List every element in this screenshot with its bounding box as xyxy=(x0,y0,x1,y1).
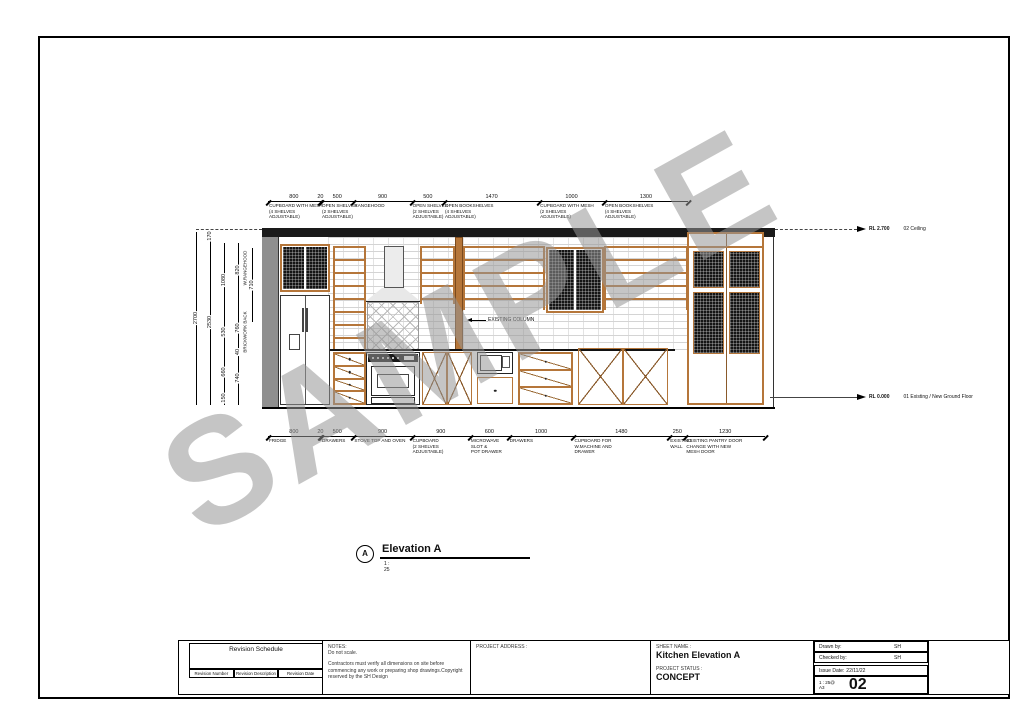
paper-size: A3 xyxy=(819,685,825,690)
fridge-handle xyxy=(306,308,308,332)
dim-value: 2700 xyxy=(193,311,199,325)
drawn-by-value: SH xyxy=(894,644,901,650)
dim-label: OPEN BOOKSHELVES (4 SHELVES ADJUSTABLE) xyxy=(445,203,503,220)
scale-value: 1 : 25@ xyxy=(819,680,835,685)
open-bookshelves-1300 xyxy=(604,246,688,310)
revision-col-number: Revision Number xyxy=(189,669,234,678)
dimension-segment: 500OPEN SHELVES (2 SHELVES ADJUSTABLE) xyxy=(412,191,444,202)
dim-label: CUPBOARD FOR W.MACHINE AND DRAWER xyxy=(574,438,632,455)
dim-value: 900 xyxy=(378,429,387,435)
dim-value: 1470 xyxy=(485,194,497,200)
rangehood-canopy xyxy=(366,288,420,301)
dim-value: 600 xyxy=(485,429,494,435)
fridge-handle xyxy=(302,308,304,332)
dim-value: 500 xyxy=(333,429,342,435)
ceiling-level-line xyxy=(196,229,262,230)
bottom-dimension-chain: 800FRIDGE20500DRAWERS900STOVE TOP AND OV… xyxy=(268,426,765,437)
drawn-by-row: Drawn by: SH xyxy=(814,641,928,652)
ceiling-rl: RL 2.700 xyxy=(869,226,889,232)
dim-value: 500 xyxy=(333,194,342,200)
sheet-number: 02 xyxy=(849,676,867,694)
dim-value: 250 xyxy=(673,429,682,435)
dimension-segment: 900CUPBOARD (2 SHELVES ADJUSTABLE) xyxy=(412,426,470,437)
cupboard-door xyxy=(447,352,472,405)
dim-value: 170 xyxy=(207,230,213,241)
title-block: Revision Schedule Revision Number Revisi… xyxy=(178,640,1010,695)
pantry-mesh-panel xyxy=(729,292,760,354)
rangehood-chimney xyxy=(384,246,404,288)
dim-label: DRAWERS xyxy=(510,438,533,444)
dim-value: 150 xyxy=(221,392,227,403)
dimension-segment: 1480CUPBOARD FOR W.MACHINE AND DRAWER xyxy=(573,426,669,437)
checked-by-row: Checked by: SH xyxy=(814,652,928,663)
cupboard-door xyxy=(422,352,447,405)
drawer xyxy=(334,391,365,404)
callout-text: EXISTING COLUMN xyxy=(488,317,534,323)
dim-label: FRIDGE xyxy=(269,438,286,444)
revision-schedule-title: Revision Schedule xyxy=(190,646,322,653)
revision-schedule-box: Revision Schedule xyxy=(189,643,323,669)
dimension-segment: 900RANGEHOOD xyxy=(353,191,411,202)
dimension-segment: 1470OPEN BOOKSHELVES (4 SHELVES ADJUSTAB… xyxy=(444,191,539,202)
view-scale: 1 : 25 xyxy=(384,561,390,573)
revision-col-description: Revision Description xyxy=(234,669,279,678)
cupboard-door xyxy=(623,348,668,405)
dimension-segment: 500OPEN SHELVES (2 SHELVES ADJUSTABLE) xyxy=(321,191,353,202)
dimension-segment: 1300OPEN BOOKSHELVES (4 SHELVES ADJUSTAB… xyxy=(604,191,688,202)
existing-column xyxy=(455,237,463,350)
drawer xyxy=(334,379,365,392)
fridge-dispenser xyxy=(289,334,300,350)
notes-cell: NOTES: Do not scale. Contractors must ve… xyxy=(323,641,471,694)
pantry-mesh-panel xyxy=(693,292,724,354)
oven-door xyxy=(371,366,415,396)
open-shelves-column xyxy=(333,246,366,350)
scale-paper: 1 : 25@ A3 xyxy=(819,680,835,691)
open-shelves-right-of-hood xyxy=(420,246,455,304)
view-title-rule xyxy=(380,557,530,559)
dim-value: 900 xyxy=(378,194,387,200)
fridge xyxy=(280,295,330,405)
dim-value: 1000 xyxy=(565,194,577,200)
dimension-segment: 900STOVE TOP AND OVEN xyxy=(353,426,411,437)
dimension-segment: 250EXISTING WALL xyxy=(669,426,685,437)
oven-drawer xyxy=(371,397,415,404)
project-address-label: PROJECT ADDRESS : xyxy=(476,644,645,650)
drawer xyxy=(334,353,365,366)
dim-label: RANGEHOOD xyxy=(354,203,384,209)
pantry-mesh-panel xyxy=(729,251,760,288)
scale-sheet-row: 1 : 25@ A3 02 xyxy=(814,676,928,694)
dimension-segment: 500DRAWERS xyxy=(321,426,353,437)
open-bookshelves-1470 xyxy=(463,246,545,310)
view-name: Elevation A xyxy=(382,543,442,555)
pantry-mesh-doors xyxy=(687,232,764,405)
dim-value: 660 xyxy=(221,366,227,377)
drawer xyxy=(519,370,572,387)
dim-label: OPEN BOOKSHELVES (4 SHELVES ADJUSTABLE) xyxy=(605,203,663,220)
sheet-meta-cell: Drawn by: SH Checked by: SH Issue Date: … xyxy=(814,641,929,694)
level-marker-icon xyxy=(857,394,866,400)
checked-by-label: Checked by: xyxy=(819,655,847,661)
revision-schedule-cell: Revision Schedule Revision Number Revisi… xyxy=(179,641,323,694)
mesh-door xyxy=(549,250,574,310)
lattice-splashback xyxy=(367,302,419,350)
dim-note-rangehood: W.RANGEHOOD xyxy=(243,251,248,286)
microwave-door xyxy=(480,355,502,371)
ceiling-level-line xyxy=(775,229,857,230)
dim-label: CUPBOARD (2 SHELVES ADJUSTABLE) xyxy=(413,438,471,455)
notes-line1: Do not scale. xyxy=(328,650,465,656)
mesh-cupboard-centre xyxy=(546,247,604,313)
dim-value: 500 xyxy=(423,194,432,200)
dimension-segment: 600MICROWAVE SLOT & POT DRAWER xyxy=(470,426,509,437)
dim-value: 710 xyxy=(249,279,255,290)
project-status: CONCEPT xyxy=(656,672,808,682)
pantry-mesh-panel xyxy=(693,251,724,288)
dim-value: 800 xyxy=(289,429,298,435)
dim-line xyxy=(224,243,225,405)
ground-level-label: RL 0.00001 Existing / New Ground Floor xyxy=(869,394,973,400)
ground-level-line xyxy=(770,397,857,398)
oven-window xyxy=(377,374,409,388)
mesh-door xyxy=(306,247,327,289)
existing-column-callout: EXISTING COLUMN xyxy=(467,317,534,323)
mesh-cupboard-left xyxy=(280,244,330,292)
washing-machine-cupboard xyxy=(578,348,668,405)
issue-date-value: 22/11/22 xyxy=(846,668,865,674)
pantry-door-split xyxy=(726,234,727,403)
level-marker-icon xyxy=(857,226,866,232)
dim-label: CUPBOARD WITH MESH (2 SHELVES ADJUSTABLE… xyxy=(540,203,598,220)
dim-value: 1000 xyxy=(535,429,547,435)
stove-oven xyxy=(366,352,420,405)
dim-value: 820 xyxy=(235,264,241,275)
sheet-name-cell: SHEET NAME : Kitchen Elevation A PROJECT… xyxy=(651,641,814,694)
revision-columns: Revision Number Revision Description Rev… xyxy=(189,669,323,678)
top-dimension-chain: 800CUPBOARD WITH MESH (4 SHELVES ADJUSTA… xyxy=(268,191,688,202)
project-address-cell: PROJECT ADDRESS : xyxy=(471,641,651,694)
dim-value: 1300 xyxy=(640,194,652,200)
dim-label: DRAWERS xyxy=(322,438,345,444)
dimension-segment: 1000DRAWERS xyxy=(509,426,574,437)
ground-rl: RL 0.000 xyxy=(869,394,889,400)
wall-right-edge xyxy=(773,237,774,407)
dim-label: MICROWAVE SLOT & POT DRAWER xyxy=(471,438,502,455)
leader-line xyxy=(472,320,486,321)
checked-by-value: SH xyxy=(894,655,901,661)
dim-value: 530 xyxy=(221,326,227,337)
issue-date-row: Issue Date: 22/11/22 xyxy=(814,665,928,676)
drawing-sheet: 800CUPBOARD WITH MESH (4 SHELVES ADJUSTA… xyxy=(0,0,1024,724)
view-bubble: A xyxy=(356,545,374,563)
mesh-door xyxy=(283,247,304,289)
dim-value: 740 xyxy=(235,372,241,383)
dimension-segment: 800FRIDGE xyxy=(268,426,320,437)
dim-value: 1230 xyxy=(719,429,731,435)
mesh-door xyxy=(576,250,601,310)
pot-drawer xyxy=(477,377,513,404)
issue-date-label: Issue Date: xyxy=(819,668,844,674)
microwave-panel xyxy=(502,356,510,368)
pantry-rail xyxy=(689,246,762,248)
drawer xyxy=(334,366,365,379)
microwave xyxy=(477,352,513,374)
drawer xyxy=(519,387,572,404)
ceiling-name: 02 Ceiling xyxy=(903,226,925,232)
dimension-segment: 1230EXISTING PANTRY DOOR CHANGE WITH NEW… xyxy=(685,426,765,437)
ceiling-level-label: RL 2.70002 Ceiling xyxy=(869,226,926,232)
dim-value: 2530 xyxy=(207,315,213,329)
drawer xyxy=(519,353,572,370)
ground-name: 01 Existing / New Ground Floor xyxy=(903,394,972,400)
revision-col-date: Revision Date xyxy=(278,669,323,678)
dim-note-brickwork: BRICKWORK BACK xyxy=(243,311,248,352)
cooktop-panel xyxy=(368,354,418,362)
base-drawers-1000 xyxy=(518,352,573,405)
existing-wall-left xyxy=(262,237,279,407)
dimension-segment: 800CUPBOARD WITH MESH (4 SHELVES ADJUSTA… xyxy=(268,191,320,202)
dim-value: 1480 xyxy=(615,429,627,435)
drawn-by-label: Drawn by: xyxy=(819,644,842,650)
cupboard-door xyxy=(578,348,623,405)
dim-value: 800 xyxy=(289,194,298,200)
sheet-name: Kitchen Elevation A xyxy=(656,650,808,660)
base-cupboard-900 xyxy=(422,352,472,405)
dim-label: EXISTING PANTRY DOOR CHANGE WITH NEW MES… xyxy=(686,438,742,455)
dim-label: STOVE TOP AND OVEN xyxy=(354,438,405,444)
dim-value: 760 xyxy=(235,322,241,333)
base-drawers-500 xyxy=(333,352,366,405)
dim-value: 1080 xyxy=(221,273,227,287)
dim-value: 900 xyxy=(436,429,445,435)
dimension-segment: 1000CUPBOARD WITH MESH (2 SHELVES ADJUST… xyxy=(539,191,604,202)
dim-value: 40 xyxy=(235,348,241,356)
notes-body: Contractors must verify all dimensions o… xyxy=(328,661,465,681)
